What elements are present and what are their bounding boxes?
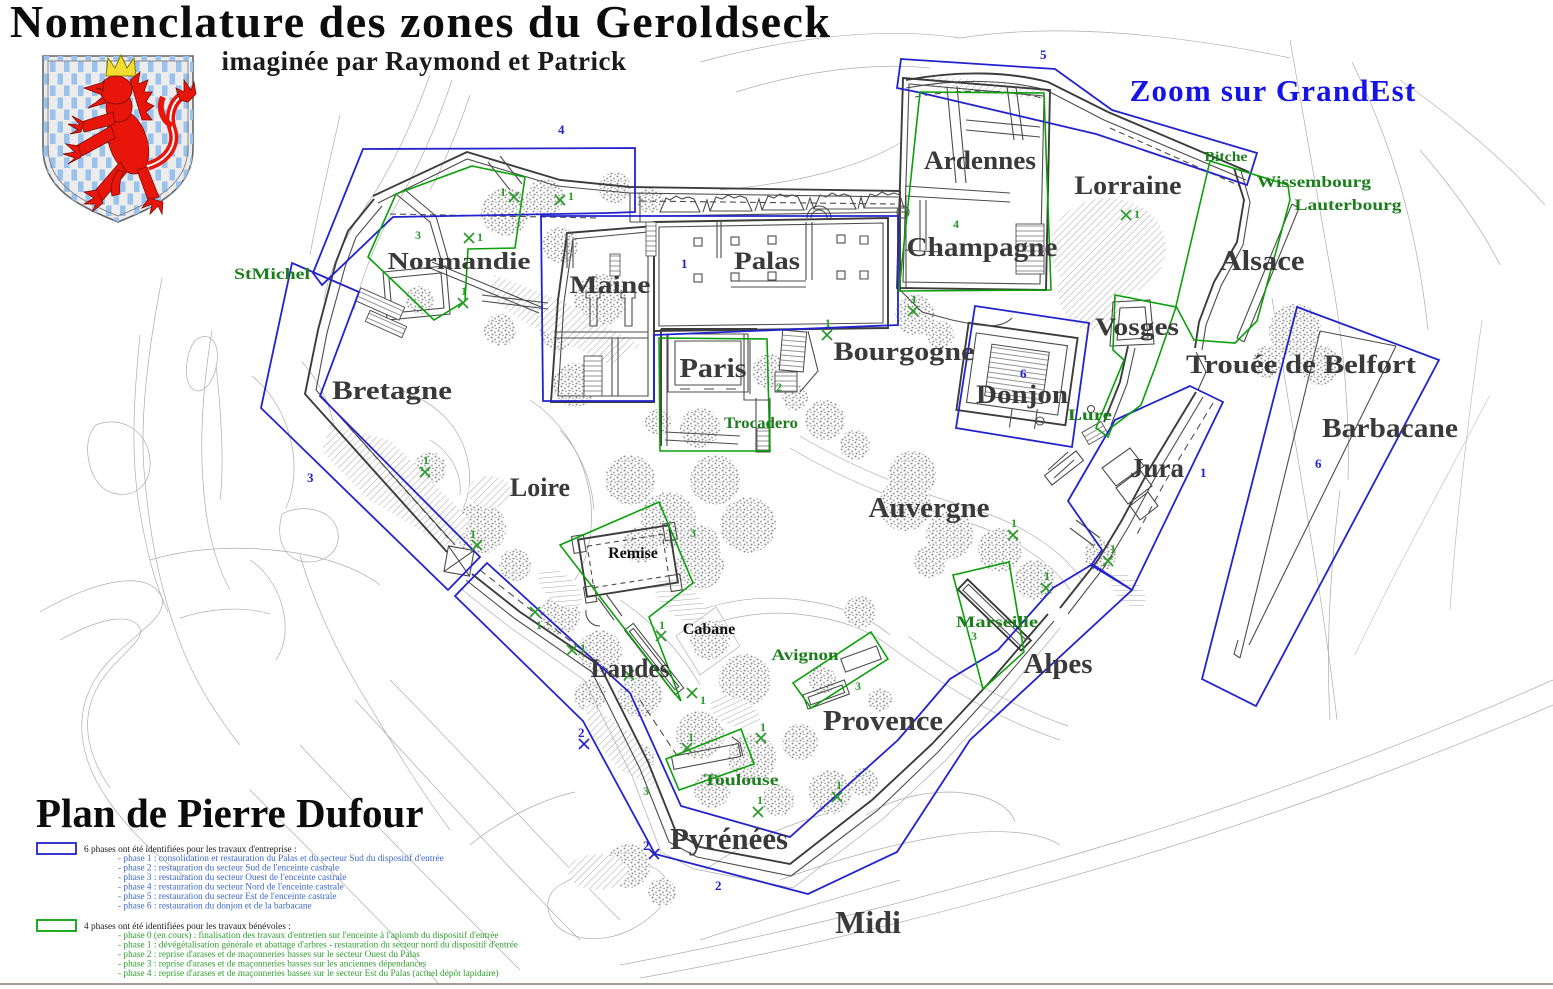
svg-text:Loire: Loire (510, 473, 570, 502)
svg-text:imaginée par Raymond et Patric: imaginée par Raymond et Patrick (222, 46, 627, 76)
svg-text:Lure: Lure (1068, 407, 1112, 424)
svg-text:1: 1 (461, 284, 467, 298)
svg-text:2: 2 (578, 725, 585, 740)
svg-text:- phase 3 : restauration du se: - phase 3 : restauration du secteur Oues… (118, 873, 346, 883)
svg-text:1: 1 (470, 527, 476, 541)
svg-text:Remise: Remise (608, 545, 658, 562)
svg-text:Toulouse: Toulouse (704, 772, 779, 789)
svg-text:Champagne: Champagne (907, 232, 1058, 262)
svg-text:Ardennes: Ardennes (924, 146, 1036, 175)
svg-text:- phase 2 : restauration du se: - phase 2 : restauration du secteur Sud … (118, 864, 339, 874)
svg-text:Cabane: Cabane (683, 621, 735, 638)
svg-text:1: 1 (1011, 516, 1017, 530)
svg-text:Maine: Maine (570, 272, 651, 299)
svg-text:3: 3 (971, 629, 977, 643)
svg-text:3: 3 (690, 526, 696, 540)
svg-text:Marseille: Marseille (956, 614, 1038, 631)
svg-text:3: 3 (307, 470, 314, 485)
svg-text:Vosges: Vosges (1095, 314, 1179, 341)
svg-text:4: 4 (953, 217, 959, 231)
svg-text:1: 1 (1134, 207, 1140, 221)
svg-text:1: 1 (1200, 465, 1207, 480)
svg-text:Bourgogne: Bourgogne (834, 337, 975, 366)
svg-text:Donjon: Donjon (976, 380, 1069, 409)
svg-text:Palas: Palas (734, 248, 800, 275)
svg-text:Avignon: Avignon (772, 647, 839, 664)
svg-text:1: 1 (477, 230, 483, 244)
svg-text:Auvergne: Auvergne (869, 493, 990, 524)
svg-text:Midi: Midi (835, 904, 901, 940)
svg-text:1: 1 (825, 316, 831, 330)
svg-text:Alsace: Alsace (1220, 246, 1305, 277)
svg-text:Barbacane: Barbacane (1322, 413, 1458, 443)
svg-text:3: 3 (415, 228, 421, 242)
svg-text:Jura: Jura (1130, 453, 1185, 483)
svg-text:- phase 6 : restauration du do: - phase 6 : restauration du donjon et de… (118, 902, 312, 912)
svg-text:1: 1 (1110, 542, 1116, 556)
svg-text:- phase 2 : reprise d'arases e: - phase 2 : reprise d'arases et de maçon… (118, 950, 420, 960)
svg-text:- phase 4 : restauration du se: - phase 4 : restauration du secteur Nord… (118, 883, 344, 893)
svg-text:1: 1 (500, 185, 506, 199)
svg-text:Wissembourg: Wissembourg (1257, 174, 1371, 191)
svg-text:Landes: Landes (591, 654, 670, 683)
svg-text:Provence: Provence (823, 705, 943, 737)
svg-text:1: 1 (1044, 569, 1050, 583)
svg-text:Lauterbourg: Lauterbourg (1295, 197, 1402, 214)
svg-text:- phase 3 : reprise d'arases e: - phase 3 : reprise d'arases et de maçon… (118, 960, 426, 970)
svg-text:- phase 0 (en cours) : finalis: - phase 0 (en cours) : finalisation des … (118, 930, 499, 941)
svg-text:Plan de Pierre Dufour: Plan de Pierre Dufour (36, 790, 424, 836)
svg-text:1: 1 (760, 720, 766, 734)
svg-text:6: 6 (1020, 366, 1027, 381)
svg-text:Alpes: Alpes (1024, 648, 1093, 680)
svg-text:Bretagne: Bretagne (332, 376, 452, 405)
svg-text:- phase 1 : consolidation et r: - phase 1 : consolidation et restauratio… (118, 853, 444, 864)
svg-text:2: 2 (715, 878, 722, 893)
svg-text:1: 1 (568, 189, 574, 203)
svg-text:1: 1 (911, 292, 917, 306)
svg-text:6: 6 (1315, 456, 1322, 471)
svg-text:- phase 5 : restauration du se: - phase 5 : restauration du secteur Est … (118, 892, 337, 902)
svg-text:1: 1 (423, 453, 429, 467)
svg-text:Nomenclature des zones du Gero: Nomenclature des zones du Geroldseck (10, 0, 832, 47)
svg-text:1: 1 (757, 793, 763, 807)
svg-text:1: 1 (688, 730, 694, 744)
svg-text:4: 4 (558, 122, 565, 137)
svg-text:Paris: Paris (680, 353, 747, 383)
svg-text:1: 1 (536, 618, 542, 632)
svg-text:Lorraine: Lorraine (1075, 171, 1182, 200)
svg-text:StMichel: StMichel (234, 266, 311, 283)
svg-text:Trocadero: Trocadero (724, 415, 798, 432)
svg-text:2: 2 (776, 380, 782, 394)
svg-text:1: 1 (659, 618, 665, 632)
svg-text:1: 1 (580, 641, 586, 655)
svg-text:- phase 1 : dévégétalisation g: - phase 1 : dévégétalisation générale et… (118, 940, 518, 951)
svg-text:- phase 4 : reprise d'arases e: - phase 4 : reprise d'arases et de maçon… (118, 968, 499, 979)
svg-text:Bitche: Bitche (1205, 150, 1248, 165)
svg-text:Normandie: Normandie (388, 249, 531, 275)
svg-text:1: 1 (836, 778, 842, 792)
svg-text:3: 3 (855, 679, 861, 693)
svg-text:Trouée de Belfort: Trouée de Belfort (1186, 350, 1416, 379)
svg-text:2: 2 (643, 838, 650, 853)
svg-text:5: 5 (1040, 47, 1047, 62)
svg-text:3: 3 (643, 784, 649, 798)
svg-text:Pyrénées: Pyrénées (670, 821, 788, 856)
svg-text:1: 1 (681, 256, 688, 271)
svg-text:1: 1 (700, 693, 706, 707)
svg-text:Zoom sur GrandEst: Zoom sur GrandEst (1130, 73, 1417, 108)
